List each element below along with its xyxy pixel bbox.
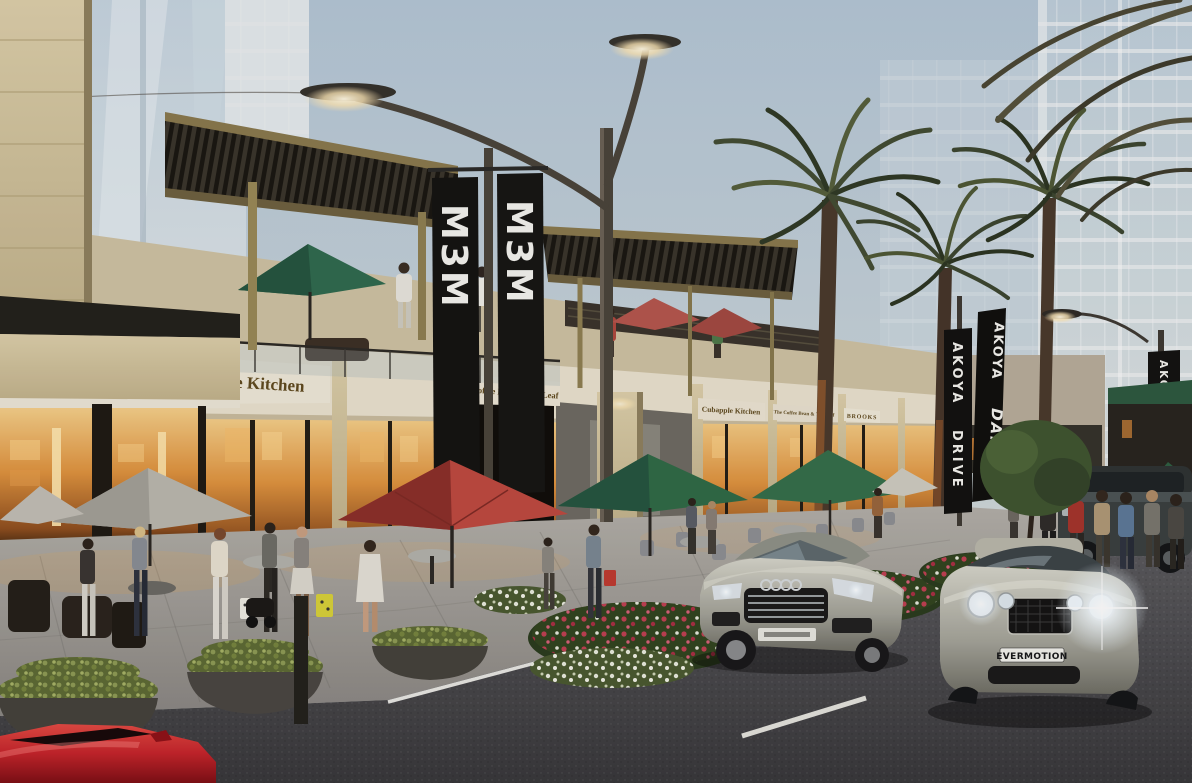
- street-scene: ns pple Kitchen The Coffee Bean & Tea Le…: [0, 0, 1192, 783]
- scene-canvas: ns pple Kitchen The Coffee Bean & Tea Le…: [0, 0, 1192, 783]
- vignette: [0, 0, 1192, 783]
